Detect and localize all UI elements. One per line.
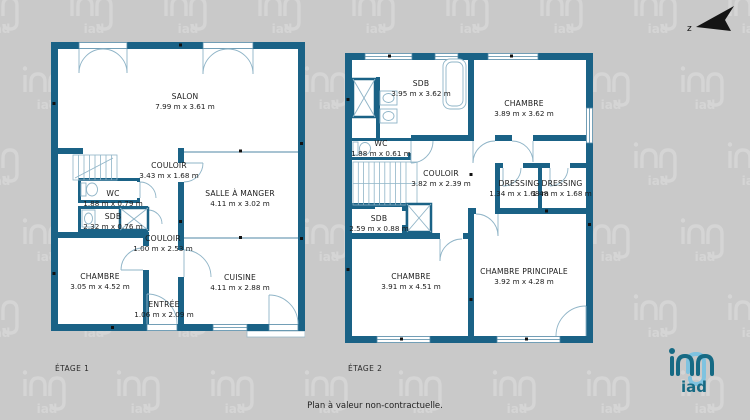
room-label-sdb-2: SDB3.95 m x 3.62 m bbox=[391, 79, 450, 99]
room-label-chambre-3: CHAMBRE3.91 m x 4.51 m bbox=[381, 272, 440, 292]
iad-logo-text: iad bbox=[681, 378, 707, 396]
floor-label-etage-1: ÉTAGE 1 bbox=[55, 364, 89, 373]
iad-logo: iad bbox=[658, 318, 728, 396]
doorstep bbox=[247, 331, 305, 337]
compass-letter: z bbox=[687, 24, 692, 34]
room-label-entree: ENTRÉE1.06 m x 2.09 m bbox=[134, 300, 193, 320]
room-label-couloir-1: COULOIR3.43 m x 1.68 m bbox=[139, 161, 198, 181]
compass-north-arrow: z bbox=[686, 3, 748, 39]
shower bbox=[353, 79, 375, 117]
room-label-chambre-2: CHAMBRE3.89 m x 3.62 m bbox=[494, 99, 553, 119]
footer-disclaimer: Plan à valeur non-contractuelle. bbox=[307, 401, 443, 411]
room-label-wc-1: WC1.88 m x 0.79 m bbox=[83, 189, 142, 209]
room-label-sdb-1: SDB2.32 m x 0.76 m bbox=[83, 212, 142, 232]
room-label-salle-a-manger: SALLE À MANGER4.11 m x 3.02 m bbox=[205, 189, 275, 209]
room-label-salon: SALON7.99 m x 3.61 m bbox=[155, 92, 214, 112]
floor-label-etage-2: ÉTAGE 2 bbox=[348, 364, 382, 373]
room-label-cuisine: CUISINE4.11 m x 2.88 m bbox=[210, 273, 269, 293]
sink bbox=[380, 109, 397, 123]
shower bbox=[407, 204, 431, 232]
room-label-sdb-3: SDB2.59 m x 0.88 m bbox=[349, 214, 408, 234]
room-label-couloir-2: COULOIR1.00 m x 2.53 m bbox=[133, 234, 192, 254]
room-label-chambre-principale: CHAMBRE PRINCIPALE3.92 m x 4.28 m bbox=[480, 267, 568, 287]
room-label-dressing-2: DRESSING1.48 m x 1.68 m bbox=[532, 179, 591, 199]
room-label-wc-2: WC1.88 m x 0.61 m bbox=[351, 139, 410, 159]
room-label-chambre-1: CHAMBRE3.05 m x 4.52 m bbox=[70, 272, 129, 292]
room-label-couloir-3: COULOIR3.82 m x 2.39 m bbox=[411, 169, 470, 189]
floorplan-canvas: iad bbox=[0, 0, 750, 420]
